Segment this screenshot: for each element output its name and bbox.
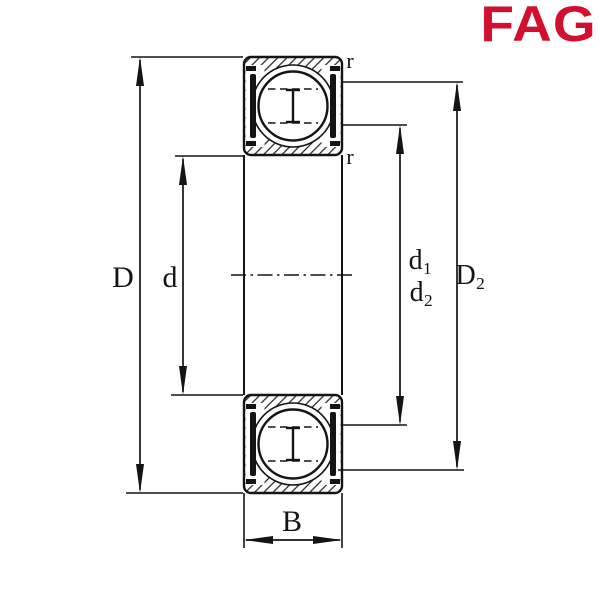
fag-logo: FAG [481,3,597,46]
label-d1-base: d [409,245,423,276]
label-chamfer-r-top: r [346,50,353,72]
label-d2-subscript: 2 [424,291,433,310]
arrow-up-icon [179,156,187,185]
arrow-down-icon [179,366,187,395]
label-chamfer-r-bottom: r [346,146,353,168]
label-d2-base: d [410,277,424,308]
arrow-down-icon [453,441,461,470]
dimension-D [126,57,243,493]
arrow-down-icon [136,464,144,493]
label-d1: d1 [409,247,432,275]
label-D2-subscript: 2 [476,274,485,293]
label-d2: d2 [410,279,433,307]
arrow-up-icon [136,57,144,86]
label-width-B: B [282,507,302,537]
label-D2-base: D [456,260,476,291]
arrow-left-icon [244,536,273,544]
dimension-d1-d2 [343,125,407,425]
label-d1-subscript: 1 [423,259,432,278]
bearing-section-top [244,57,342,155]
arrow-right-icon [313,536,342,544]
arrow-up-icon [396,125,404,154]
arrow-down-icon [396,396,404,425]
label-outer-diameter-D: D [112,263,134,293]
bearing-drawing-canvas: D d d1 d2 D2 B r r FAG [0,0,600,600]
label-D2: D2 [456,262,485,290]
bearing-section-bottom [244,395,342,493]
label-bore-diameter-d: d [163,263,178,293]
arrow-up-icon [453,82,461,111]
